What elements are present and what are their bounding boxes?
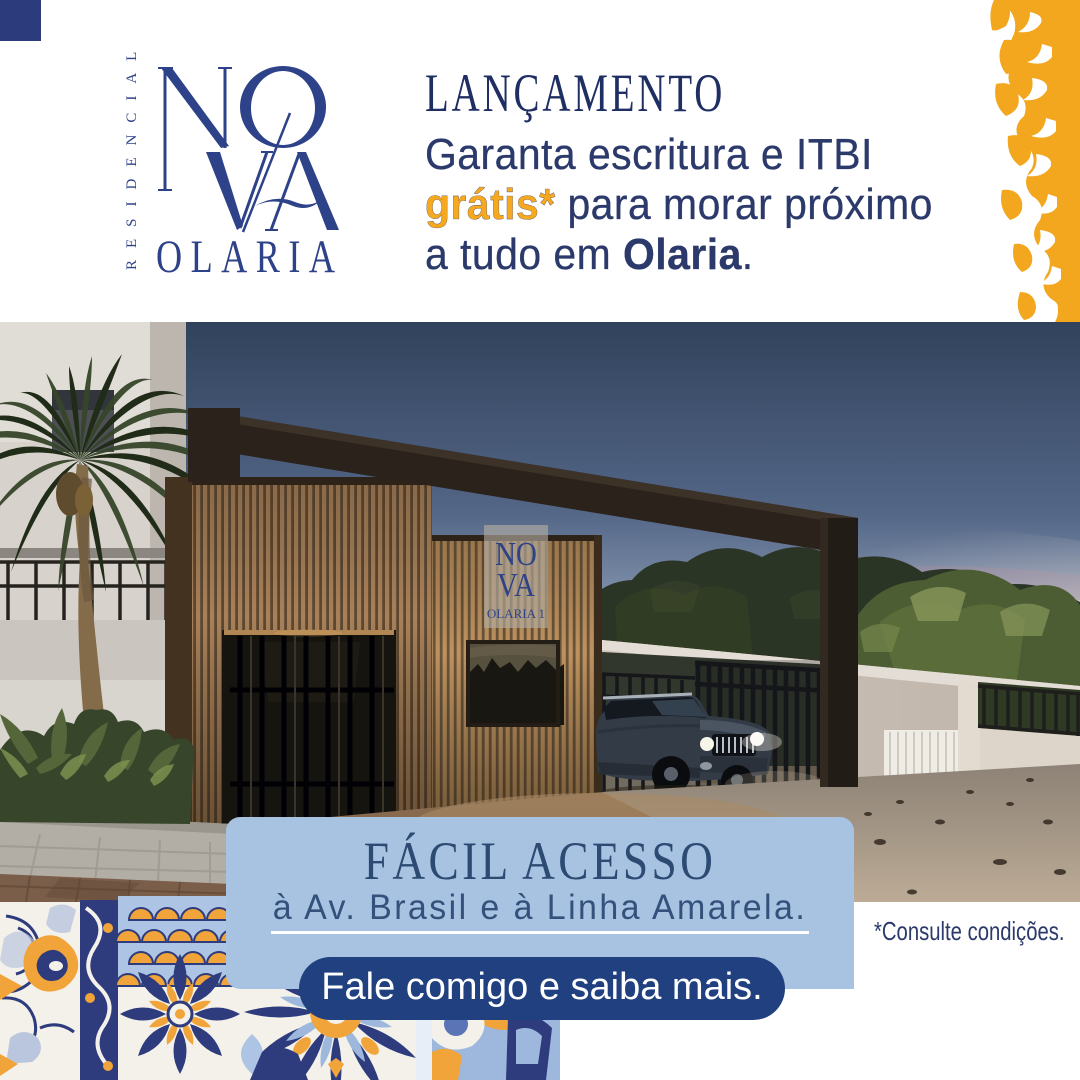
svg-text:OLARIA 1: OLARIA 1	[487, 606, 545, 621]
svg-text:RESIDENCIAL: RESIDENCIAL	[124, 40, 140, 270]
svg-text:OLARIA: OLARIA	[156, 232, 344, 284]
svg-text:VA: VA	[497, 566, 535, 604]
